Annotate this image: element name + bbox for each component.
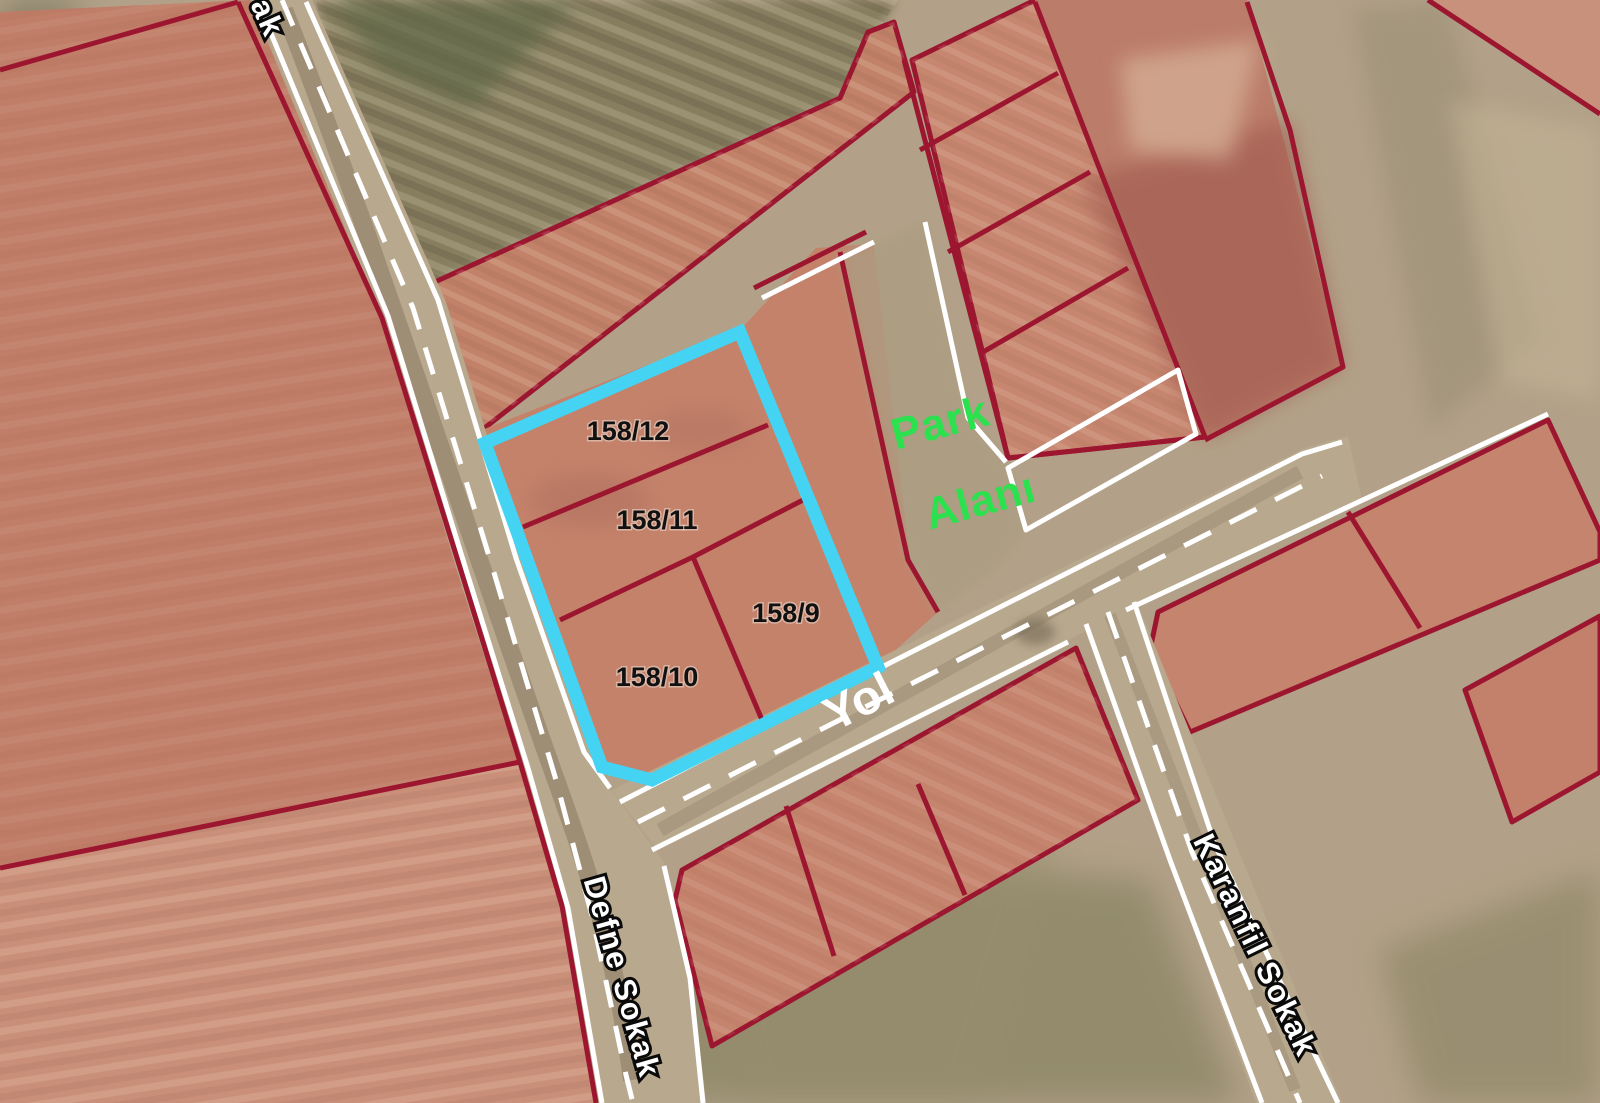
bush-shadow xyxy=(1015,619,1055,645)
parcel-label-158-11: 158/11 xyxy=(616,505,697,535)
map-canvas[interactable]: 158/12 158/11 158/9 158/10 Park Alanı Yo… xyxy=(0,0,1600,1103)
parcel-label-158-10: 158/10 xyxy=(616,662,699,692)
parcel-label-158-9: 158/9 xyxy=(752,598,820,628)
parcel-label-158-12: 158/12 xyxy=(587,416,670,446)
